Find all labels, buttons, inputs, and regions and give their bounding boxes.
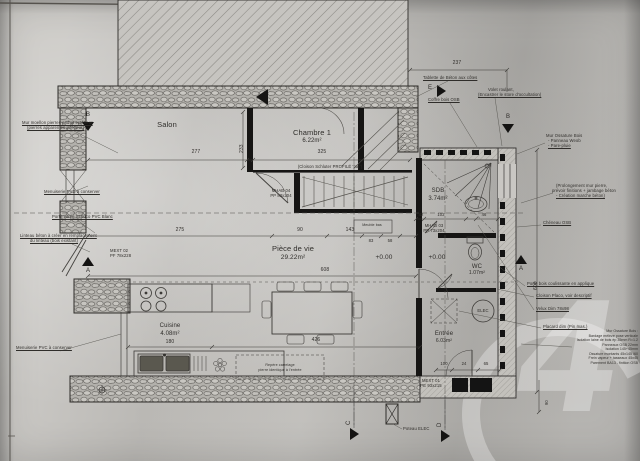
stone-walls (58, 86, 420, 402)
annotation-pvc-keep-bottom: Menuiserie PVC à conserver (16, 346, 72, 350)
section-marker-a: A (519, 266, 523, 272)
black-partitions (247, 89, 496, 376)
dim-pv-d: 83 (369, 239, 374, 243)
dim-pv-b: 90 (297, 228, 303, 233)
annotation-tile-mark-2: pierre identique à l'entrée (258, 369, 301, 373)
dim-salon-width: 277 (192, 150, 201, 155)
annotation-shutter-2: (Encastrer le store d'occultation) (478, 93, 541, 97)
dim-entree-b: 24 (462, 362, 467, 366)
annotation-gutter: Chéneau OSB (543, 221, 571, 225)
dim-sdb-b: 102 (437, 213, 444, 217)
tag-mhab04-size: PP 83x204 (270, 194, 291, 198)
room-area-chambre: 6.22m² (302, 138, 321, 144)
dim-entree-a: 100 (440, 362, 447, 366)
dim-pv-width: 426 (312, 338, 321, 343)
drain-flower-icon (214, 358, 227, 371)
windows-doors (60, 170, 472, 376)
section-marker-c: C (346, 421, 352, 425)
tag-meuble-bas: Meuble bas (362, 224, 382, 228)
dim-pv-c: 143 (346, 228, 355, 233)
section-marker-a: A (86, 268, 90, 274)
bathroom-fixtures (424, 163, 494, 323)
room-label-sdb: SDB (432, 188, 445, 194)
level-marker: +0.00 (376, 255, 393, 262)
plan-drawing (0, 0, 640, 461)
dim-chambre-width: 325 (318, 150, 327, 155)
annotation-pvc-keep-top: Menuiserie PVC à conserver (44, 190, 100, 194)
legend-line: Parement BA13 - finition OSB (572, 361, 638, 366)
room-label-piece-de-vie: Pièce de vie (272, 245, 314, 253)
section-marker-e: E (428, 85, 432, 91)
section-marker-d: D (437, 423, 443, 427)
dim-pv-a: 275 (176, 228, 185, 233)
section-marker-b: B (506, 114, 510, 120)
room-area-sdb: 3.74m² (428, 196, 447, 202)
annotation-cloison-schluter: (Cloison Schluter PROFILÉ 'par') (298, 165, 362, 169)
room-label-cuisine: Cuisine (160, 323, 181, 329)
dim-right-bottom: 90 (545, 400, 549, 405)
annotation-velux: Velux Dim 78x98 (536, 307, 569, 311)
existing-building-hatch (118, 0, 408, 86)
dim-cuisine-width: 180 (166, 340, 175, 345)
annotation-osb-box: Coffre bois OSB (428, 98, 460, 102)
tag-mext02-size: PF 78x228 (110, 254, 131, 258)
room-area-piece-de-vie: 29.22m² (281, 255, 306, 262)
room-area-entree: 6.03m² (436, 339, 452, 344)
wall-buildup-legend: Mur Ossature Bois : Bardage mélèze pose … (572, 329, 638, 365)
annotation-sliding-door: Porte bois coulissante en applique (527, 282, 594, 286)
room-area-cuisine: 4.08m² (160, 331, 179, 337)
stairs (302, 108, 408, 207)
room-label-chambre: Chambre 1 (293, 129, 331, 137)
tag-mhab03-size: PP 73x204 (423, 229, 444, 233)
dim-sdb-c: 46 (482, 213, 487, 217)
annotation-glazed-door: Porte vitrée Schüco PVC Blanc (52, 215, 113, 219)
annotation-lintel-2: du linteau (bois existant) (30, 239, 78, 243)
legend-line: Isolation laine de bois ép 35mm R=1.2 (572, 338, 638, 343)
level-marker: +0.00 (429, 255, 446, 262)
tag-elec: ELEC (477, 309, 488, 313)
dim-top-right: 237 (453, 61, 462, 66)
annotation-plasterboard: Cloison Placo, voir descriptif (536, 294, 592, 298)
section-marker-b: B (86, 112, 90, 118)
room-label-entree: Entrée (435, 331, 453, 337)
room-area-wc: 1.07m² (469, 271, 485, 276)
dim-pv-e: 58 (388, 239, 393, 243)
dim-pv-total: 608 (321, 268, 330, 273)
dim-sdb-a: 42 (419, 213, 424, 217)
tag-mext01-size: PE 93x215 (420, 384, 441, 388)
annotation-timber-wall-3: - Pare-pluie (548, 144, 571, 148)
annotation-wall-stone-2: (pierres apparentes intérieur) (27, 126, 84, 130)
floor-plan-photo: 4 (0, 0, 640, 461)
annotation-stone-ext-3: - Création marche béton) (556, 194, 605, 198)
tag-poteau: Poteau ELEC (403, 427, 429, 431)
annotation-concrete-shelf: Tablette de Béton aux côtes (423, 76, 477, 80)
room-label-salon: Salon (157, 121, 177, 129)
dim-salon-height: 233 (240, 144, 245, 153)
dim-entree-c: 65 (484, 362, 489, 366)
